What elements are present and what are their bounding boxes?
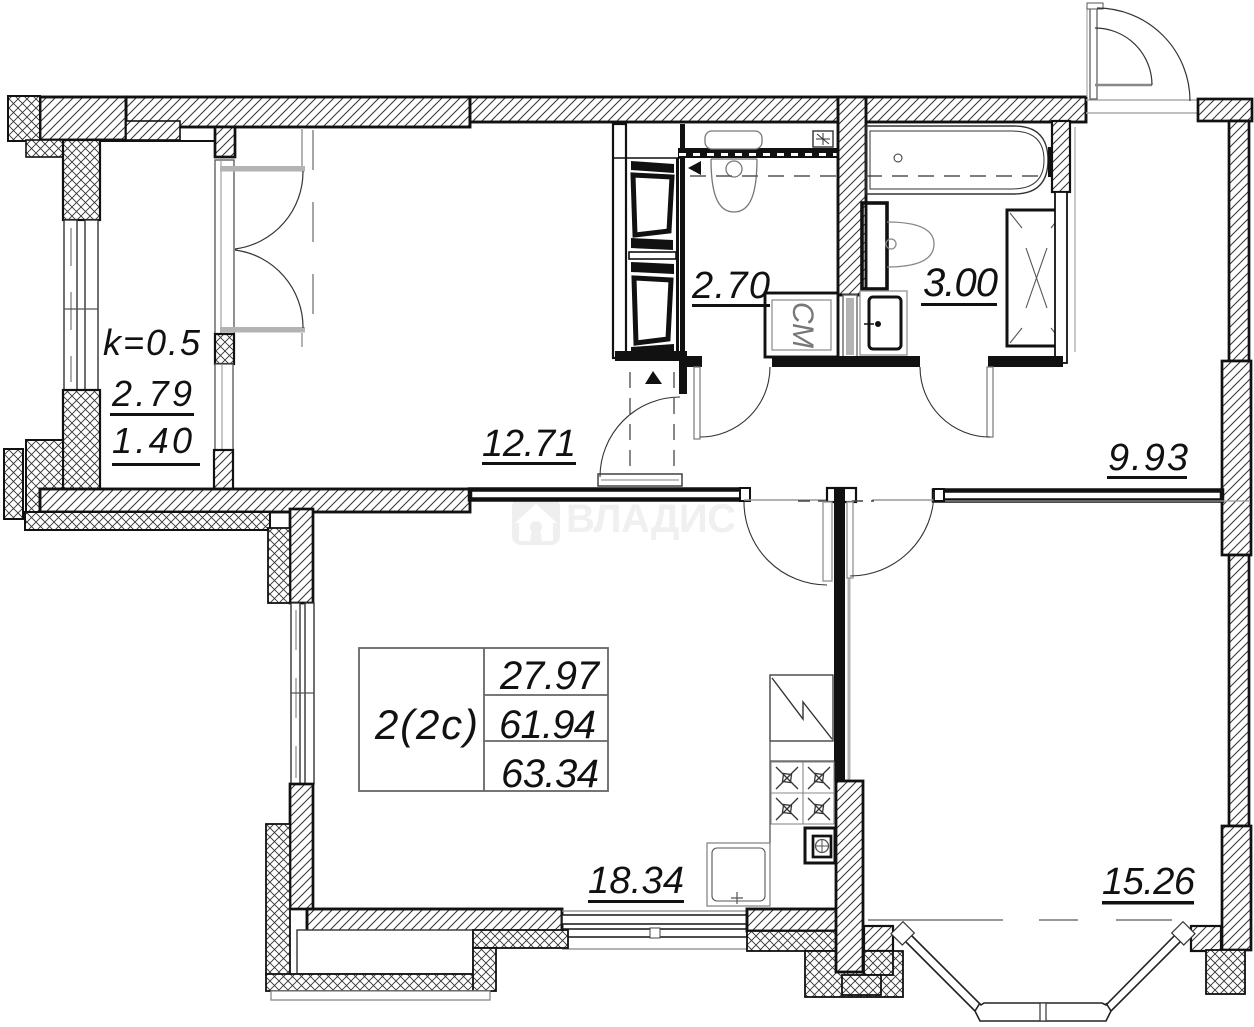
svg-text:61.94: 61.94 (499, 703, 596, 747)
svg-text:3.00: 3.00 (923, 261, 998, 305)
svg-text:1.40: 1.40 (112, 420, 192, 461)
svg-text:2.70: 2.70 (691, 265, 770, 307)
svg-text:27.97: 27.97 (499, 654, 601, 698)
svg-text:63.34: 63.34 (501, 752, 599, 796)
svg-text:2.79: 2.79 (111, 373, 192, 414)
svg-text:15.26: 15.26 (1102, 861, 1196, 903)
svg-text:СМ: СМ (786, 302, 819, 348)
svg-text:k=0.5: k=0.5 (103, 322, 201, 363)
svg-text:ВЛАДИС: ВЛАДИС (566, 497, 736, 541)
svg-text:12.71: 12.71 (482, 423, 576, 465)
svg-text:18.34: 18.34 (588, 860, 684, 902)
svg-text:9.93: 9.93 (1108, 437, 1188, 479)
